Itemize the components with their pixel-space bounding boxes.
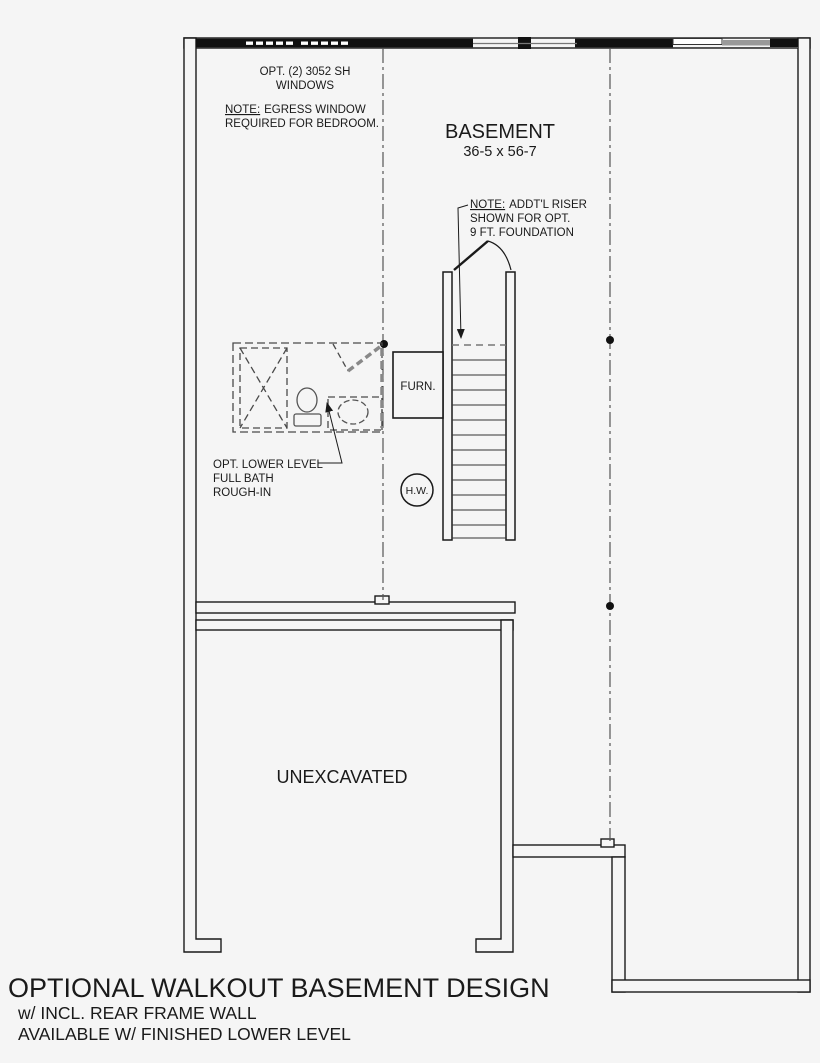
opt-windows-note-line2: WINDOWS xyxy=(276,80,334,92)
water-heater-label: H.W. xyxy=(406,485,429,497)
bath-note-leader xyxy=(318,403,342,463)
riser-note-leader xyxy=(458,205,468,338)
riser-note-line3: 9 FT. FOUNDATION xyxy=(470,227,574,239)
stair xyxy=(443,241,515,540)
floor-plan-page: OPT. (2) 3052 SH WINDOWS NOTE:EGRESS WIN… xyxy=(0,0,820,1063)
shower-rough-in xyxy=(240,348,287,428)
plan-title: OPTIONAL WALKOUT BASEMENT DESIGN xyxy=(8,973,550,1003)
bathroom-rough-in xyxy=(233,343,382,432)
plan-subtitle-1: w/ INCL. REAR FRAME WALL xyxy=(17,1003,257,1023)
rear-frame-wall xyxy=(196,602,515,613)
furnace-label: FURN. xyxy=(400,381,435,393)
lower-wall-notch xyxy=(601,839,614,847)
window-opening xyxy=(673,39,722,45)
title-block: OPTIONAL WALKOUT BASEMENT DESIGN w/ INCL… xyxy=(8,973,550,1044)
floor-plan-drawing: OPT. (2) 3052 SH WINDOWS NOTE:EGRESS WIN… xyxy=(0,0,820,1063)
room-label-basement: BASEMENT xyxy=(445,121,555,143)
stair-right-wall xyxy=(506,272,515,540)
room-label-unexcavated: UNEXCAVATED xyxy=(276,767,407,787)
door-arc xyxy=(488,241,511,270)
toilet-rough-in xyxy=(294,388,321,426)
gray-wall-segment xyxy=(722,40,770,46)
plan-text: OPT. (2) 3052 SH WINDOWS NOTE:EGRESS WIN… xyxy=(213,66,587,787)
rear-wall-notch xyxy=(375,596,389,604)
foundation-walls xyxy=(184,38,810,992)
riser-note-line2: SHOWN FOR OPT. xyxy=(470,213,570,225)
unexcavated-top-wall xyxy=(196,620,513,630)
bath-note-line3: ROUGH-IN xyxy=(213,487,271,499)
plumbing-dash-line xyxy=(333,344,348,371)
riser-note-line1: NOTE:ADDT'L RISER xyxy=(470,199,587,211)
opt-windows-note-line1: OPT. (2) 3052 SH xyxy=(260,66,351,78)
stair-left-wall xyxy=(443,272,452,540)
stair-treads xyxy=(452,360,506,538)
lavatory-rough-in xyxy=(338,400,368,424)
bath-note-line2: FULL BATH xyxy=(213,473,274,485)
plan-subtitle-2: AVAILABLE W/ FINISHED LOWER LEVEL xyxy=(18,1024,351,1044)
bath-inner-outline xyxy=(328,397,382,430)
bath-note-line1: OPT. LOWER LEVEL xyxy=(213,459,324,471)
bottom-wall xyxy=(612,980,810,992)
stair-door-swing xyxy=(454,241,511,270)
egress-note-line1: NOTE:EGRESS WINDOW xyxy=(225,104,366,116)
egress-note-line2: REQUIRED FOR BEDROOM. xyxy=(225,118,379,130)
room-dims-basement: 36-5 x 56-7 xyxy=(463,144,536,160)
unexcavated-right-wall xyxy=(476,620,513,952)
column-centerlines xyxy=(383,48,610,841)
right-wall xyxy=(798,38,810,992)
plumbing-heavy-dash-diagonal xyxy=(348,346,381,371)
lower-vertical-wall xyxy=(612,857,625,992)
